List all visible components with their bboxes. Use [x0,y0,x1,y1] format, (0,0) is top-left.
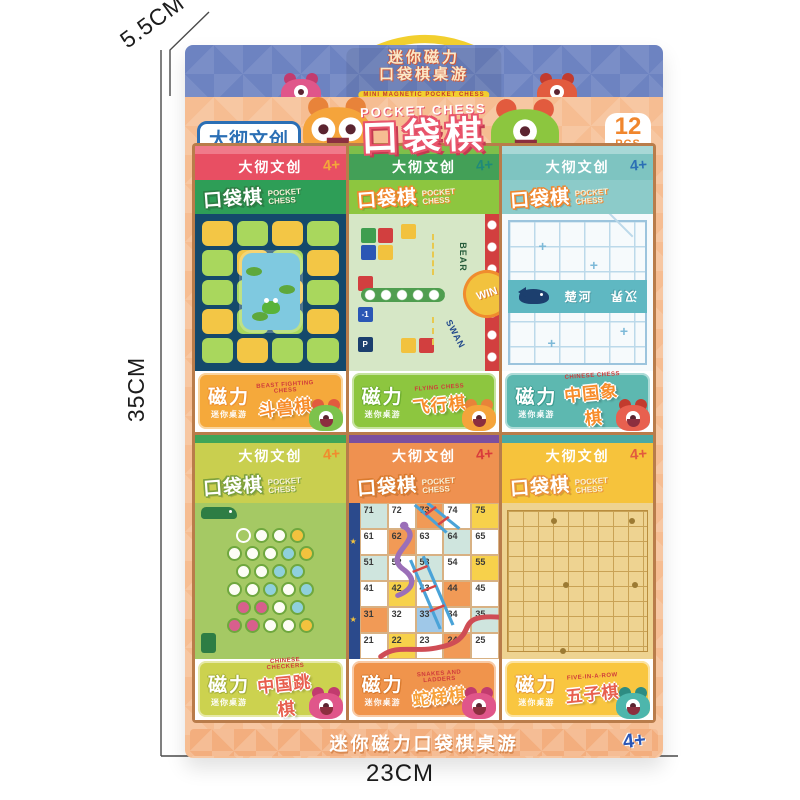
pocket-en: POCKET CHESS [267,476,301,494]
pocket-en: POCKET CHESS [421,188,455,206]
magnet-text: 磁力 [356,382,410,409]
card-header: 大彻文创 4+ [502,154,653,180]
pocket-en: POCKET CHESS [421,476,455,494]
mini-text: 迷你桌游 [356,697,410,708]
board-gomoku [502,503,653,660]
snakes-cell: 25 [471,633,499,659]
card-snakes-ladders: 大彻文创 4+ 口袋棋 POCKET CHESS 71 [349,435,500,721]
card-strip [195,146,346,154]
box-front-face: 大彻文创 POCKET CHESS 口袋棋 12 PCS [185,97,663,758]
snakes-cell: 35 [471,607,499,633]
card-age: 4+ [629,445,648,463]
pond [242,253,301,330]
width-dimension-label: 23CM [366,760,434,788]
snakes-cell: 24 [443,633,471,659]
game-name-cn: 斗兽棋 [255,391,316,422]
board-beast-chess [195,214,346,371]
card-pocket-badge: 口袋棋 POCKET CHESS [502,180,653,214]
board-xiangqi: + + + + 楚河 汉界 [502,214,653,371]
game-name-cn: 中国象棋 [561,376,625,432]
mini-text: 迷你桌游 [202,697,256,708]
magnet-text: 磁力 [509,670,563,697]
card-beast-chess: 大彻文创 4+ 口袋棋 POCKET CHESS [195,146,346,432]
card-age: 4+ [476,445,495,463]
magnet-text: 磁力 [509,382,563,409]
card-strip [349,435,500,443]
card-brand: 大彻文创 [392,157,456,177]
magnet-block: 磁力 迷你桌游 [509,382,563,420]
card-brand: 大彻文创 [238,157,302,177]
top-band-line2: 口袋棋桌游 [358,67,489,84]
monster-icon [462,399,496,431]
pocket-en-2: CHESS [575,484,609,494]
mini-text: 迷你桌游 [509,697,563,708]
pocket-en-2: CHESS [422,196,456,206]
pocket-en-2: CHESS [422,484,456,494]
game-name-cn: 蛇梯棋 [409,680,470,711]
card-age: 4+ [476,156,495,174]
card-pocket-badge: 口袋棋 POCKET CHESS [502,469,653,503]
card-label: 磁力 迷你桌游 FIVE-IN-A-ROW 五子棋 [505,661,650,717]
pocket-cn: 口袋棋 [202,470,264,501]
snakes-cell: 54 [443,555,471,581]
age-badge: 4+ [622,729,647,754]
magnet-block: 磁力 迷你桌游 [356,670,410,708]
magnet-block: 磁力 迷你桌游 [356,382,410,420]
magnet-text: 磁力 [356,670,410,697]
magnet-text: 磁力 [202,382,256,409]
river-text-right: 汉界 [609,288,637,305]
game-card-grid: 大彻文创 4+ 口袋棋 POCKET CHESS [192,143,656,723]
frog-icon [262,301,280,314]
minus-one-cell: -1 [358,307,373,322]
card-brand: 大彻文创 [546,157,610,177]
monster-icon [309,687,343,719]
card-pocket-badge: 口袋棋 POCKET CHESS [349,469,500,503]
snakes-cell: 32 [388,607,416,633]
mini-text: 迷你桌游 [356,409,410,420]
piece-count: 12 [605,116,651,138]
pocket-en: POCKET CHESS [575,476,609,494]
card-pocket-badge: 口袋棋 POCKET CHESS [349,180,500,214]
card-age: 4+ [629,156,648,174]
pocket-cn: 口袋棋 [509,470,571,501]
game-name-cn: 中国跳棋 [254,667,318,720]
river: 楚河 汉界 [508,280,647,313]
snakes-cell: 52 [388,555,416,581]
card-strip [502,435,653,443]
card-header: 大彻文创 4+ [502,443,653,469]
magnet-block: 磁力 迷你桌游 [202,382,256,420]
card-label: 磁力 迷你桌游 BEAST FIGHTING CHESS 斗兽棋 [198,373,343,429]
magnet-block: 磁力 迷你桌游 [202,670,256,708]
card-label: 磁力 迷你桌游 CHINESE CHESS 中国象棋 [505,373,650,429]
card-brand: 大彻文创 [546,446,610,466]
snakes-cell: 22 [388,633,416,659]
top-band-title: 迷你磁力 口袋棋桌游 MINI MAGNETIC POCKET CHESS [346,48,501,97]
snakes-cell: 43 [416,581,444,607]
card-brand: 大彻文创 [392,446,456,466]
dashed-path [432,317,434,345]
bottom-banner: 迷你磁力口袋棋桌游 4+ [190,729,658,756]
whale-icon [519,289,549,304]
monster-icon [616,399,650,431]
height-dimension-label: 35CM [123,357,150,422]
magnet-text: 磁力 [202,670,256,697]
snakes-cell: 45 [471,581,499,607]
pocket-cn: 口袋棋 [509,181,571,212]
pocket-en-2: CHESS [575,196,609,206]
card-label: 磁力 迷你桌游 SNAKES AND LADDERS 蛇梯棋 [352,661,497,717]
board-flying-chess: WIN BEAR SWAN -1 P [349,214,500,371]
bear-label: BEAR [458,242,468,272]
snakes-cell: 65 [471,529,499,555]
snakes-cell: 75 [471,503,499,529]
parking-cell: P [358,337,373,352]
game-name-cn: 五子棋 [562,677,623,708]
dashed-path [432,234,434,275]
card-label: 磁力 迷你桌游 CHINESE CHECKERS 中国跳棋 [198,661,343,717]
monster-icon [537,73,577,97]
card-chinese-chess: 大彻文创 4+ 口袋棋 POCKET CHESS + + [502,146,653,432]
top-band-line1: 迷你磁力 [358,50,489,67]
runway [361,288,445,302]
river-text-left: 楚河 [565,288,593,305]
pocket-en: POCKET CHESS [267,188,301,206]
monster-icon [616,687,650,719]
snakes-cell: 34 [443,607,471,633]
pocket-cn: 口袋棋 [356,181,418,212]
card-age: 4+ [322,156,341,174]
card-pocket-badge: 口袋棋 POCKET CHESS [195,180,346,214]
snakes-cell: 73 [416,503,444,529]
game-box: 迷你磁力 口袋棋桌游 MINI MAGNETIC POCKET CHESS 大彻… [185,45,663,758]
board-chinese-checkers [195,503,346,660]
snakes-cell: 74 [443,503,471,529]
monster-icon [309,399,343,431]
product-photo: 5.5CM 35CM 23CM 迷你磁力 口袋棋桌游 MINI MAGNETIC… [0,0,800,800]
card-flying-chess: 大彻文创 4+ 口袋棋 POCKET CHESS [349,146,500,432]
card-label: 磁力 迷你桌游 FLYING CHESS 飞行棋 [352,373,497,429]
snakes-cell: 55 [471,555,499,581]
pocket-en: POCKET CHESS [575,188,609,206]
magnet-block: 磁力 迷你桌游 [509,670,563,708]
pocket-cn: 口袋棋 [356,470,418,501]
pocket-en-2: CHESS [268,484,302,494]
pocket-cn: 口袋棋 [202,181,264,212]
mini-text: 迷你桌游 [509,409,563,420]
monster-icon [281,73,321,97]
snakes-cell: 61 [360,529,388,555]
snakes-cell: 71 [360,503,388,529]
main-title-cn: 口袋棋 [360,116,488,157]
card-header: 大彻文创 4+ [195,154,346,180]
card-header: 大彻文创 4+ [195,443,346,469]
mini-text: 迷你桌游 [202,409,256,420]
snakes-cell: 21 [360,633,388,659]
card-chinese-checkers: 大彻文创 4+ 口袋棋 POCKET CHESS [195,435,346,721]
card-strip [502,146,653,154]
snakes-cell: 31 [360,607,388,633]
snakes-cell: 72 [388,503,416,529]
card-pocket-badge: 口袋棋 POCKET CHESS [195,469,346,503]
snakes-cell: 44 [443,581,471,607]
win-circle: WIN [457,264,499,324]
crocodile-icon [201,507,237,519]
pocket-en-2: CHESS [268,196,302,206]
snakes-cell: 41 [360,581,388,607]
star-icon [349,503,360,660]
card-age: 4+ [322,445,341,463]
swan-label: SWAN [444,318,467,350]
card-brand: 大彻文创 [238,446,302,466]
gomoku-grid [507,510,648,653]
card-gomoku: 大彻文创 4+ 口袋棋 POCKET CHESS [502,435,653,721]
board-snakes-ladders: 71 72 73 74 75 61 62 63 64 65 51 52 [349,503,500,660]
depth-dimension-label: 5.5CM [115,0,190,54]
snakes-cell: 63 [416,529,444,555]
snakes-cell: 51 [360,555,388,581]
card-strip [195,435,346,443]
main-title: POCKET CHESS 口袋棋 [360,101,488,157]
snakes-cell: 53 [416,555,444,581]
box-top-band: 迷你磁力 口袋棋桌游 MINI MAGNETIC POCKET CHESS [185,45,663,97]
snakes-cell: 62 [388,529,416,555]
snakes-cell: 42 [388,581,416,607]
snakes-cell: 64 [443,529,471,555]
snakes-cell: 33 [416,607,444,633]
snakes-grid: 71 72 73 74 75 61 62 63 64 65 51 52 [360,503,500,660]
game-name-cn: 飞行棋 [409,388,470,419]
bottom-banner-text: 迷你磁力口袋棋桌游 [330,730,519,756]
green-figure-icon [201,633,216,653]
card-header: 大彻文创 4+ [349,443,500,469]
monster-icon [462,687,496,719]
snakes-cell: 23 [416,633,444,659]
